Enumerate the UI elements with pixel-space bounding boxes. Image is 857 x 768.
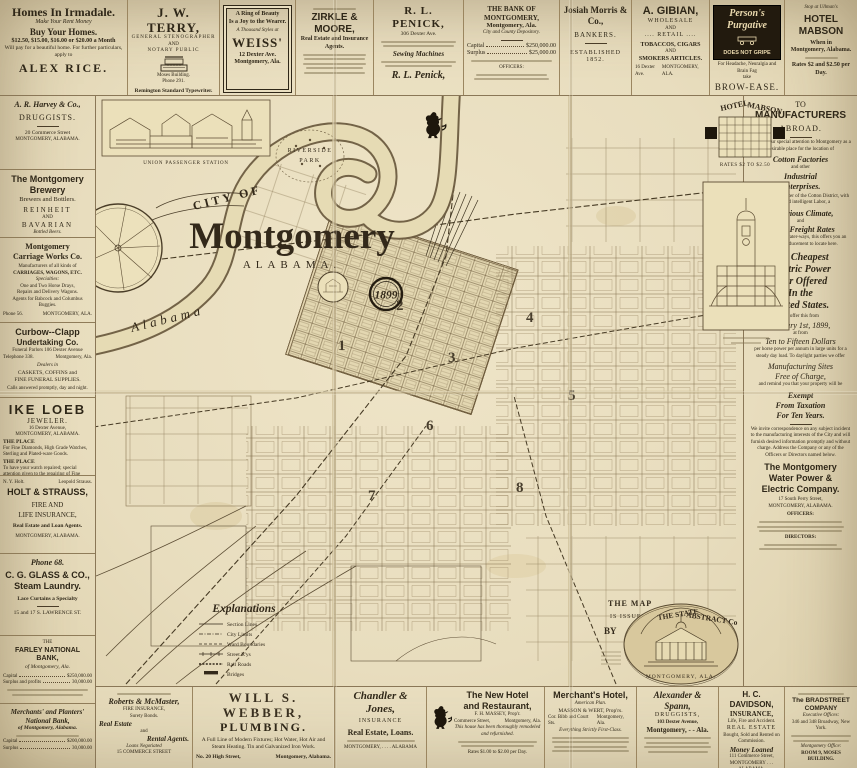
surplus-label: Surplus (3, 746, 18, 753)
ad-farley-bank: THE FARLEY NATIONAL BANK, of Montgomery,… (0, 636, 95, 704)
ad-glass-laundry: Phone 68. C. G. GLASS & CO., Steam Laund… (0, 554, 95, 636)
fine-print-line (798, 693, 844, 695)
ad-line: and remind you that your property will b… (749, 382, 852, 389)
ad-line: For Ten Years. (749, 411, 852, 421)
ad-line: BAVARIAN (3, 221, 92, 230)
fine-print-line (303, 54, 367, 56)
surplus-value: 30,000.00 (72, 680, 92, 687)
engraving-caption: RATES $2 TO $2.50 (720, 163, 770, 168)
fine-print-line (644, 746, 712, 748)
ad-water-power-company: We invite correspondence on any subject … (749, 427, 852, 551)
engraving-label: MABSON (747, 100, 783, 116)
courthouse-engraving (701, 180, 791, 348)
ad-webber-plumbing: WILL S. WEBBER, PLUMBING. A Full Line of… (192, 687, 334, 768)
ad-city: MONTGOMERY . . . ALABAMA. (722, 761, 781, 768)
ad-curbow-clapp: Curbow--Clapp Undertaking Co. Funeral Pa… (0, 323, 95, 398)
ad-title: Merchant's Hotel, (548, 690, 633, 701)
ad-line: CASKETS, COFFINS and (3, 370, 92, 377)
ad-line: ESTABLISHED 1852. (563, 50, 628, 65)
ad-line: This house has been thoroughly remodeled… (454, 725, 541, 738)
fine-print-line (303, 63, 367, 65)
fine-print-line (12, 694, 83, 696)
ad-title: Montgomery (3, 242, 92, 252)
fine-print-line (552, 741, 629, 743)
ad-line: FINE FUNERAL SUPPLIES. (3, 377, 92, 384)
ad-line: INSURANCE (338, 718, 423, 726)
fine-print-line (471, 60, 551, 62)
ad-line: From Taxation (749, 401, 852, 411)
ad-line: GENERAL STENOGRAPHER (131, 35, 216, 42)
fine-print-line (757, 526, 845, 528)
ad-line: SMOKERS ARTICLES. (635, 56, 706, 64)
ad-title: R. L. PENICK, (377, 5, 460, 31)
capital-value: $250,000.00 (526, 43, 556, 51)
engraving-caption-lines (723, 338, 769, 343)
ad-line: Buy Your Homes. (3, 27, 124, 38)
ad-title: Curbow--Clapp (3, 327, 92, 338)
ad-line: BANKERS. (563, 31, 628, 40)
ad-line: Steam Heating. Tin and Galvanized Iron W… (196, 744, 331, 751)
ad-line: per horse power per annum in large units… (749, 347, 852, 360)
ad-name: ALEX RICE. (3, 61, 124, 75)
ad-title: Carriage Works Co. (3, 252, 92, 262)
dot-leader (19, 740, 65, 742)
map-title: Montgomery (189, 216, 395, 257)
ad-line: To have your watch repaired; special att… (3, 466, 92, 477)
ad-city: MONTGOMERY, ALABAMA. (3, 137, 92, 144)
ad-subtitle: of Montgomery, Alabama. (3, 725, 92, 732)
map-year: 1899 (375, 290, 398, 302)
fine-print-line (458, 741, 536, 743)
ad-line: Person's (715, 8, 779, 20)
ad-line: Brewers and Bottlers. (3, 196, 92, 204)
ad-heading: THE PLACE (3, 459, 92, 466)
capital-label: Capital (467, 43, 484, 51)
fine-print-line (474, 78, 550, 80)
officers-label: OFFICERS: (749, 512, 852, 519)
scanned-map-sheet: Homes In Irmadale. Make Your Rent Money … (0, 0, 857, 768)
fine-print-line (644, 737, 712, 739)
wagon-icon (732, 35, 762, 45)
surplus-label: Surplus and profits (3, 680, 41, 687)
ad-title: H. C. DAVIDSON, (722, 690, 781, 710)
ad-weiss: A Ring of Beauty Is a Joy to the Wearer.… (220, 0, 296, 95)
ad-title: IKE LOEB (3, 402, 92, 417)
map-legend: Explanations Section Lines City Limits W… (199, 603, 276, 678)
ad-line: Real Estate, Loans. (338, 728, 423, 738)
fine-print-line (304, 58, 364, 60)
ad-title: Steam Laundry. (3, 581, 92, 592)
ad-city: Montgomery, - - Ala. (640, 726, 715, 735)
ad-line: Rental Agents. (99, 735, 189, 744)
fine-print-line (646, 742, 710, 744)
ward-number: 1 (338, 338, 346, 354)
legend-item: Street R'ys (227, 652, 251, 658)
ad-address: 306 Dexter Ave. (377, 31, 460, 38)
typewriter-icon (157, 55, 191, 73)
dot-leader (486, 45, 524, 47)
divider-rule (37, 126, 59, 127)
officers-label: OFFICERS: (467, 65, 556, 72)
surplus-label: Surplus (467, 50, 485, 58)
ad-line: Free of Charge, (749, 372, 852, 382)
engraving-label: HOTEL (720, 98, 750, 113)
ad-address: 12 Dexter Ave. (226, 52, 289, 60)
dot-leader (487, 52, 527, 54)
ad-line: A Ring of Beauty (226, 11, 289, 19)
ad-title: Water Power & (749, 473, 852, 484)
ad-address: 111 Commerce Street, (722, 754, 781, 761)
ad-title: WILL S. WEBBER, (196, 690, 331, 720)
ad-line: Manufacturing Sites (749, 362, 852, 372)
railroad-map-inset (96, 204, 162, 292)
ad-line: Agents for Babcock and Columbus Buggies. (3, 297, 92, 310)
ad-heading: THE PLACE (3, 439, 92, 446)
ad-title: A. GIBIAN, (635, 5, 706, 18)
ad-footer: Typewriters to Rent. (131, 95, 216, 96)
issued-line: THE MAP (608, 599, 652, 608)
ad-proprietor: MASSON & WERT, Prop'rs. (548, 708, 633, 715)
ad-title: FARLEY NATIONAL BANK, (3, 647, 92, 664)
ad-ike-loeb: IKE LOEB JEWELER. 16 Dexter Avenue, MONT… (0, 398, 95, 476)
ad-line: Purgative (715, 20, 779, 32)
fine-print-line (476, 74, 547, 76)
ad-line: LIFE INSURANCE, (3, 511, 92, 520)
artesian-basin-medallion (318, 272, 348, 302)
emblem-city: MONTGOMERY, ALA. (646, 674, 716, 680)
ad-line: ROOM 9, MOSES BUILDING. (788, 751, 854, 764)
park-label: PARK (299, 158, 320, 164)
fine-print-line (759, 521, 841, 523)
divider-rule (585, 43, 607, 44)
ad-city: Montgomery, Ala. (597, 715, 633, 728)
ad-line: 346 and 348 Broadway, New York. (788, 720, 854, 733)
ad-line: Everything Strictly First-Class. (548, 728, 633, 735)
ad-subtitle: PLUMBING. (196, 720, 331, 734)
fine-print-line (554, 746, 626, 748)
ad-chandler-jones: Chandler & Jones, INSURANCE Real Estate,… (334, 687, 426, 768)
ad-line: Make Your Rent Money (3, 19, 124, 27)
ad-bank-of-montgomery: THE BANK OF MONTGOMERY, Montgomery, Ala.… (464, 0, 560, 95)
ad-phone: Telephone 338. (3, 355, 34, 362)
ad-city: MONTGOMERY, . . . . ALABAMA (338, 745, 423, 752)
persons-purgative-box: Person's Purgative DOES NOT GRIPE (713, 5, 781, 60)
legend-item: Bridges (227, 672, 244, 678)
ad-zirkle-moore: ZIRKLE & MOORE, Real Estate and Insuranc… (296, 0, 374, 95)
divider-rule (501, 40, 523, 41)
ad-line: When in (788, 40, 854, 48)
ward-number: 6 (426, 418, 434, 434)
ad-signature: R. L. Penick, (377, 70, 460, 82)
fine-print-line (648, 751, 708, 753)
legend-item: City Limits (227, 632, 252, 638)
ad-city: MONTGOMERY, ALA. (662, 65, 706, 78)
ad-roberts-mcmaster: Roberts & McMaster, FIRE INSURANCE, Sure… (96, 687, 192, 768)
ad-new-hotel: The New Hotel and Restaurant, F. H. MASS… (426, 687, 544, 768)
ad-title: Alexander & Spann, (640, 690, 715, 712)
ad-title: Undertaking Co. (3, 338, 92, 348)
ad-phone: Phone 68. (3, 558, 92, 568)
ad-line: A Full Line of Modern Fixtures; Hot Wate… (196, 737, 331, 744)
ad-hotel-mabson: Stop at Ullman's HOTEL MABSON When in Mo… (785, 0, 857, 95)
ad-title: Electric Company. (749, 484, 852, 495)
ad-city: MONTGOMERY, ALA. (43, 312, 92, 319)
ad-line: Montgomery, Alabama. (788, 47, 854, 55)
fine-print-line (117, 693, 171, 695)
fine-print-line (552, 737, 629, 739)
ad-subtitle: Montgomery, Ala. (467, 22, 556, 30)
legend-item: Rail Roads (227, 662, 251, 668)
ad-title: HOLT & STRAUSS, (3, 487, 92, 498)
city-map: Alabama RIVERSIDE PARK 1 2 3 4 5 6 7 8 (96, 96, 743, 686)
surplus-value: $25,000.00 (529, 50, 556, 58)
ad-gibian: A. GIBIAN, WHOLESALE AND .... RETAIL ...… (632, 0, 710, 95)
ad-line: Calls answered promptly, day and night. (3, 386, 92, 393)
dot-leader (43, 681, 70, 683)
ad-line: For Headache, Neuralgia and Brain Fag (713, 62, 781, 75)
rampant-lion-icon (430, 704, 452, 734)
ad-rates: Rates $1.00 to $2.00 per Day. (454, 750, 541, 757)
fine-print-line (793, 740, 849, 742)
ad-title: Homes In Irmadale. (3, 5, 124, 19)
ad-line: Bottled Beers. (3, 230, 92, 237)
ad-tagline: BROW-EASE. (713, 82, 781, 93)
ad-harvey-druggists: A. R. Harvey & Co., DRUGGISTS. 20 Commer… (0, 96, 95, 170)
hotel-mabson-engraving: HOTEL MABSON RATES $2 TO $2.50 (705, 97, 785, 169)
ward-number: 7 (368, 488, 376, 504)
ad-persons-purgative: Person's Purgative DOES NOT GRIPE For He… (710, 0, 785, 95)
ad-address: 20 Commerce Street (3, 130, 92, 137)
fine-print-line (304, 72, 364, 74)
fine-print-line (306, 67, 363, 69)
divider-rule (790, 424, 812, 425)
ad-title: HOTEL MABSON (788, 14, 854, 38)
ad-subtitle: Real Estate and Insurance Agents. (299, 36, 370, 51)
fine-print-line (347, 740, 415, 742)
dot-leader (19, 675, 65, 677)
east-grid (496, 246, 736, 526)
fine-print-line (759, 530, 841, 532)
ad-title: C. G. GLASS & CO., (3, 570, 92, 581)
ad-name: WEISS' (226, 35, 289, 50)
ward-number: 3 (448, 350, 456, 366)
ad-line: Real Estate (99, 720, 189, 729)
bottom-ad-row: Roberts & McMaster, FIRE INSURANCE, Sure… (96, 686, 857, 768)
ad-line: Bought, Sold and Rented on Commission. (722, 733, 781, 746)
fine-print-line (383, 45, 454, 47)
fine-print-line (461, 745, 535, 747)
ad-title: Roberts & McMaster, (99, 697, 189, 707)
ad-address: 15 COMMERCE STREET (99, 750, 189, 757)
map-area: Alabama RIVERSIDE PARK 1 2 3 4 5 6 7 8 (96, 96, 743, 686)
legend-title: Explanations (211, 603, 276, 615)
ad-davidson: H. C. DAVIDSON, INSURANCE, Life, Fire an… (718, 687, 784, 768)
ad-title: The BRADSTREET COMPANY (788, 697, 854, 713)
dot-leader (20, 747, 70, 749)
ad-title: THE BANK OF MONTGOMERY, (467, 5, 556, 22)
ad-city: MONTGOMERY, ALABAMA. (749, 504, 852, 511)
divider-rule (37, 606, 59, 607)
ad-merchants-hotel: Merchant's Hotel, American Plan. MASSON … (544, 687, 636, 768)
ad-address: Montgomery, Ala. (226, 59, 289, 67)
ad-line: Will pay for a beautiful home. For furth… (3, 45, 124, 59)
ad-carriage-works: Montgomery Carriage Works Co. Manufactur… (0, 238, 95, 323)
ad-title: and Restaurant, (454, 701, 541, 712)
ad-footer: Remington Standard Typewriter. (131, 88, 216, 95)
fine-print-line (385, 65, 451, 67)
ward-number: 4 (526, 310, 534, 326)
fine-print-line (7, 689, 87, 691)
ad-line: For Fine Diamonds, High Grade Watches, S… (3, 446, 92, 459)
ad-title: National Bank, (3, 717, 92, 726)
fine-print-line (552, 750, 629, 752)
ward-number: 5 (568, 388, 576, 404)
fine-print-line (759, 548, 841, 550)
ad-title: ZIRKLE & MOORE, (299, 12, 370, 36)
ad-city: MONTGOMERY, ALABAMA. (3, 534, 92, 541)
ad-montgomery-brewery: The Montgomery Brewery Brewers and Bottl… (0, 170, 95, 238)
fine-print-line (16, 735, 78, 737)
fine-print-line (313, 8, 356, 10)
ad-holt-strauss: N. Y. Holt. Leopold Strauss. HOLT & STRA… (0, 476, 95, 554)
ad-line: Real Estate and Loan Agents. (3, 523, 92, 530)
ad-line: City and County Depository. (467, 30, 556, 37)
ad-line: FIRE AND (3, 501, 92, 510)
ad-line: Is a Joy to the Wearer. (226, 19, 289, 27)
divider-rule (790, 137, 812, 138)
park-label: RIVERSIDE (288, 148, 333, 154)
ad-city: MONTGOMERY, ALABAMA. (3, 432, 92, 439)
ad-line: DRUGGISTS. (3, 113, 92, 123)
ad-homes-irmadale: Homes In Irmadale. Make Your Rent Money … (0, 0, 128, 95)
ad-penick: R. L. PENICK, 306 Dexter Ave. Sewing Mac… (374, 0, 464, 95)
west-grid (126, 396, 248, 504)
ad-line: NOTARY PUBLIC (131, 48, 216, 55)
ad-josiah-morris: Josiah Morris & Co., BANKERS. ESTABLISHE… (560, 0, 632, 95)
ad-title: J. W. TERRY, (131, 5, 216, 35)
ad-line: Stop at Ullman's (788, 5, 854, 12)
ad-subtitle: of Montgomery, Ala. (3, 664, 92, 671)
ad-address: 15 and 17 S. LAWRENCE ST. (3, 610, 92, 617)
legend-item: Ward Boundaries (227, 642, 265, 648)
ad-city: Montgomery, Alabama. (276, 754, 331, 761)
ad-phone: Phone 56. (3, 312, 23, 319)
ad-address: No. 20 High Street, (196, 754, 241, 761)
fine-print-line (381, 61, 456, 63)
surplus-value: 30,000.00 (72, 746, 92, 753)
ad-line: $12.50, $15.00, $16.00 or $20.00 a Month (3, 38, 124, 46)
fine-print-line (791, 735, 850, 737)
ad-line: We invite correspondence on any subject … (749, 427, 852, 460)
ad-line: DOES NOT GRIPE (715, 50, 779, 57)
issued-line: BY (604, 626, 617, 636)
ad-title: Merchants' and Planters' (3, 708, 92, 717)
ad-jw-terry: J. W. TERRY, GENERAL STENOGRAPHER AND NO… (128, 0, 220, 95)
ad-title: The Montgomery (749, 462, 852, 473)
ad-bradstreet: The BRADSTREET COMPANY Executive Offices… (784, 687, 857, 768)
ad-title: The New Hotel (454, 690, 541, 701)
top-ad-row: Homes In Irmadale. Make Your Rent Money … (0, 0, 857, 96)
legend-item: Section Lines (227, 622, 257, 628)
ad-line: Phone 291. (131, 79, 216, 86)
ad-line: REINHEIT (3, 206, 92, 215)
left-ad-column: A. R. Harvey & Co., DRUGGISTS. 20 Commer… (0, 96, 96, 768)
ad-address: Cor. Bibb and Court Sts. (548, 715, 597, 728)
ad-city: Montgomery, Ala. (56, 355, 92, 362)
ad-address: 16 Dexter Ave. (635, 65, 662, 78)
ad-line: DRUGGISTS, (640, 712, 715, 720)
fine-print-line (381, 41, 456, 43)
ad-line: INSURANCE, (722, 710, 781, 719)
fine-print-line (764, 544, 836, 546)
ad-title: A. R. Harvey & Co., (3, 100, 92, 110)
ad-line: Exempt (749, 391, 852, 401)
map-subtitle: ALABAMA. (243, 259, 341, 271)
partner-name: Leopold Strauss. (58, 480, 92, 487)
ad-line: Money Loaned (722, 746, 781, 755)
ad-title: Brewery (3, 185, 92, 196)
ad-title: Josiah Morris & Co., (563, 5, 628, 27)
ad-line: .... RETAIL .... (635, 32, 706, 40)
ward-number: 8 (516, 480, 524, 496)
ad-line: Sewing Machines (377, 50, 460, 59)
ad-title: Chandler & Jones, (338, 690, 423, 716)
ad-alexander-spann: Alexander & Spann, DRUGGISTS, 103 Dexter… (636, 687, 718, 768)
south-grid (246, 426, 511, 631)
ad-line: JEWELER. (3, 417, 92, 426)
ad-merchants-planters: Merchants' and Planters' National Bank, … (0, 704, 95, 768)
ad-line: Lace Curtains a Specialty (3, 596, 92, 603)
ad-rates: Rates $2 and $2.50 per Day. (788, 62, 854, 77)
directors-label: DIRECTORS: (749, 535, 852, 542)
partner-name: N. Y. Holt. (3, 480, 25, 487)
fine-print-line (805, 57, 838, 59)
ad-line: WHOLESALE (635, 18, 706, 26)
ad-line: REAL ESTATE (722, 725, 781, 733)
station-caption: UNION PASSENGER STATION (143, 161, 229, 166)
union-station-engraving: UNION PASSENGER STATION (102, 100, 270, 166)
ad-line: TOBACCOS, CIGARS (635, 42, 706, 50)
ad-title: The Montgomery (3, 174, 92, 185)
